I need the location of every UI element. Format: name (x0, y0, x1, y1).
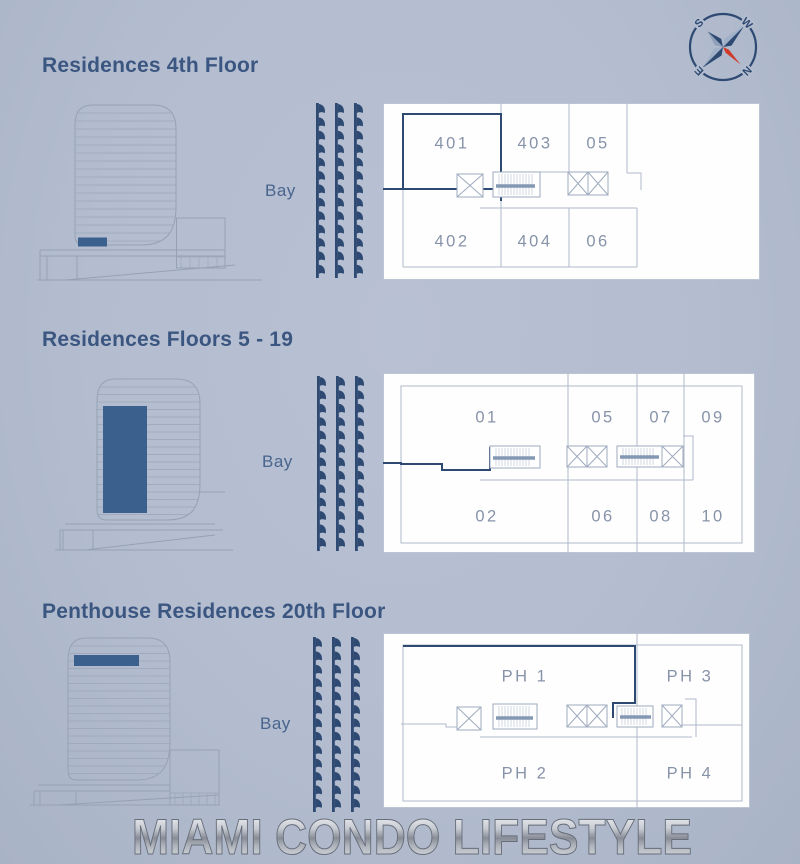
wave-icon (332, 637, 344, 812)
highlighted-floor-4 (78, 238, 107, 247)
stairs-icon (617, 446, 662, 467)
floor-plan-penthouse: PH 1 PH 3 PH 2 PH 4 (383, 633, 750, 808)
unit-06: 06 (591, 508, 614, 526)
floor-plan-4th-floor: 401 403 05 402 404 06 (383, 103, 760, 280)
building-elevation-floors-5-19 (55, 373, 235, 555)
unit-ph4: PH 4 (667, 765, 714, 783)
compass-needle (723, 47, 741, 65)
wave-icon (313, 637, 325, 812)
compass-icon: S W E N (678, 2, 768, 92)
unit-07: 07 (649, 409, 672, 427)
wave-icon (335, 103, 347, 278)
unit-02: 02 (475, 508, 498, 526)
unit-10: 10 (701, 508, 724, 526)
unit-403: 403 (517, 135, 552, 153)
highlighted-floors-5-19 (103, 406, 147, 513)
floorplan-sheet: S W E N Residences 4th Floor Bay (0, 0, 800, 864)
unit-402: 402 (434, 233, 469, 251)
stairs-icon (493, 704, 537, 729)
unit-01: 01 (475, 409, 498, 427)
unit-406: 06 (586, 233, 609, 251)
section-title-4th-floor: Residences 4th Floor (42, 54, 258, 78)
wave-icon (354, 103, 366, 278)
wave-icon (316, 103, 328, 278)
bay-label-2: Bay (262, 452, 293, 472)
section-title-penthouse: Penthouse Residences 20th Floor (42, 600, 385, 624)
elevator-icon (567, 705, 607, 727)
elevator-icon (457, 174, 483, 197)
floor-plan-floors-5-19: 01 05 07 09 02 06 08 10 (383, 373, 755, 553)
unit-401: 401 (434, 135, 469, 153)
wave-icon (336, 376, 348, 551)
unit-05: 05 (591, 409, 614, 427)
stairs-icon (490, 446, 540, 468)
unit-ph2: PH 2 (502, 765, 549, 783)
watermark-text: MIAMI CONDO LIFESTYLE (132, 809, 692, 864)
unit-ph3: PH 3 (667, 668, 714, 686)
building-elevation-penthouse (30, 633, 225, 815)
unit-ph1: PH 1 (502, 668, 549, 686)
unit-404: 404 (517, 233, 552, 251)
unit-405: 05 (586, 135, 609, 153)
unit-08: 08 (649, 508, 672, 526)
wave-icon (317, 376, 329, 551)
bay-label-3: Bay (260, 714, 291, 734)
unit-09: 09 (701, 409, 724, 427)
highlighted-floor-20 (74, 655, 139, 666)
elevator-icon (662, 446, 683, 467)
bay-label-1: Bay (265, 181, 296, 201)
stairs-icon (493, 172, 540, 197)
building-elevation-4th-floor (35, 95, 265, 285)
elevator-icon (662, 705, 682, 727)
stairs-icon (617, 706, 653, 727)
wave-icon (351, 637, 363, 812)
section-title-floors-5-19: Residences Floors 5 - 19 (42, 328, 293, 352)
elevator-icon (567, 446, 607, 467)
wave-icon (355, 376, 367, 551)
elevator-icon (457, 707, 481, 730)
elevator-icon (568, 172, 608, 195)
watermark: MIAMI CONDO LIFESTYLE (125, 804, 700, 864)
